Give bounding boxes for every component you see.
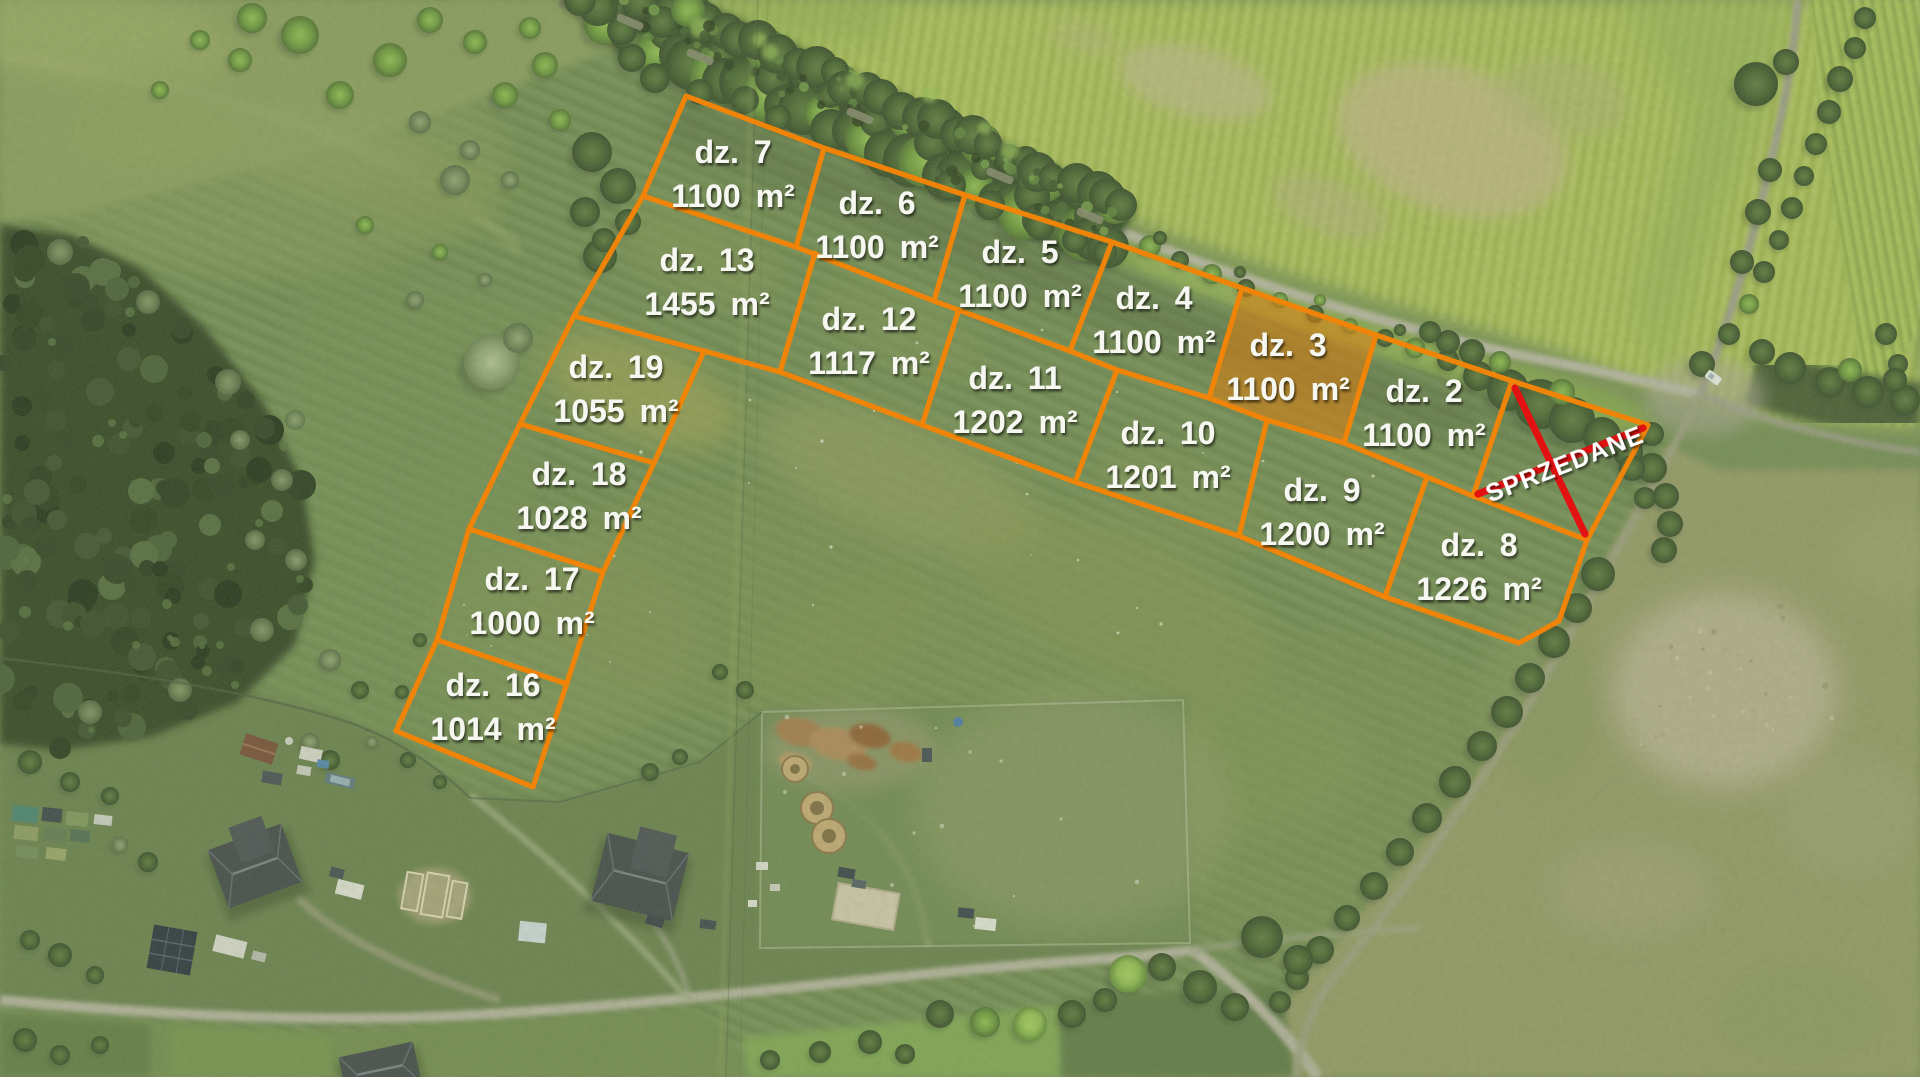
svg-text:dz. 7: dz. 7: [694, 134, 771, 170]
svg-text:dz. 19: dz. 19: [569, 349, 664, 385]
svg-text:dz. 17: dz. 17: [485, 561, 580, 597]
svg-text:dz. 13: dz. 13: [660, 242, 755, 278]
svg-text:dz. 16: dz. 16: [446, 667, 541, 703]
svg-text:1055 m²: 1055 m²: [553, 393, 678, 429]
svg-text:1455 m²: 1455 m²: [644, 286, 769, 322]
svg-text:1117 m²: 1117 m²: [808, 345, 930, 381]
svg-text:dz. 2: dz. 2: [1385, 373, 1462, 409]
svg-text:1200 m²: 1200 m²: [1259, 516, 1384, 552]
svg-text:1201 m²: 1201 m²: [1105, 459, 1230, 495]
svg-text:1202 m²: 1202 m²: [952, 404, 1077, 440]
svg-text:dz. 11: dz. 11: [968, 360, 1061, 396]
svg-text:dz. 3: dz. 3: [1249, 327, 1326, 363]
svg-text:dz. 18: dz. 18: [532, 456, 627, 492]
svg-text:1000 m²: 1000 m²: [469, 605, 594, 641]
svg-text:dz. 9: dz. 9: [1283, 472, 1360, 508]
svg-text:1100 m²: 1100 m²: [671, 178, 794, 214]
svg-text:dz. 6: dz. 6: [838, 185, 915, 221]
svg-text:1226 m²: 1226 m²: [1416, 571, 1541, 607]
svg-text:dz. 4: dz. 4: [1115, 280, 1192, 316]
svg-text:1100 m²: 1100 m²: [1226, 371, 1349, 407]
svg-text:dz. 5: dz. 5: [981, 234, 1058, 270]
svg-text:dz. 12: dz. 12: [822, 301, 917, 337]
svg-text:1028 m²: 1028 m²: [516, 500, 641, 536]
svg-text:1100 m²: 1100 m²: [958, 278, 1081, 314]
svg-text:1100 m²: 1100 m²: [1362, 417, 1485, 453]
svg-text:1100 m²: 1100 m²: [1092, 324, 1215, 360]
svg-text:1100 m²: 1100 m²: [815, 229, 938, 265]
svg-text:dz. 10: dz. 10: [1121, 415, 1216, 451]
svg-text:dz. 8: dz. 8: [1440, 527, 1517, 563]
svg-text:1014 m²: 1014 m²: [430, 711, 555, 747]
